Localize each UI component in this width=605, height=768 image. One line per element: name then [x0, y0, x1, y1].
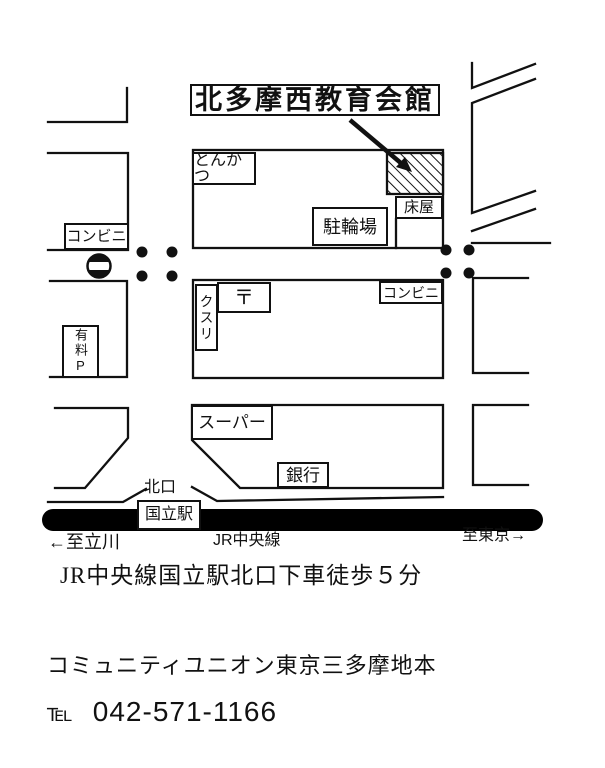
building-barber: 床屋 — [395, 196, 443, 219]
access-caption: JR中央線国立駅北口下車徒歩５分 — [60, 560, 422, 590]
map-title-box: 北多摩西教育会館 — [190, 84, 440, 116]
building-bicycle-parking: 駐輪場 — [312, 207, 388, 246]
building-paid-parking: 有料P — [62, 325, 99, 378]
railway-line-label: JR中央線 — [213, 531, 281, 551]
tel-icon: ℡ — [47, 699, 73, 728]
building-bank: 銀行 — [277, 462, 329, 488]
building-post-office: 〒 — [217, 282, 271, 313]
organization-name: コミュニティユニオン東京三多摩地本 — [47, 653, 437, 679]
tel-number: 042-571-1166 — [93, 696, 277, 728]
street-lines — [48, 63, 550, 502]
telephone-row: ℡ 042-571-1166 — [47, 696, 277, 728]
crosswalk-dots — [137, 245, 475, 282]
building-drugstore: クスリ — [195, 284, 218, 351]
building-convenience-east: コンビニ — [379, 281, 443, 304]
access-map-page: 北多摩西教育会館 とんかつ 床屋 駐輪場 コンビニ コンビニ クスリ 〒 有料P… — [0, 0, 605, 768]
arrow-pointer-icon — [350, 120, 412, 172]
direction-to-tokyo: 至東京→ — [462, 526, 526, 546]
station-name-box: 国立駅 — [137, 500, 201, 530]
building-tonkatsu: とんかつ — [192, 152, 256, 185]
direction-to-tachikawa: ←至立川 — [48, 531, 120, 553]
building-convenience-west: コンビニ — [64, 223, 129, 250]
building-supermarket: スーパー — [191, 405, 273, 440]
station-north-exit-label: 北口 — [144, 478, 176, 498]
traffic-signal-icon — [87, 255, 111, 278]
